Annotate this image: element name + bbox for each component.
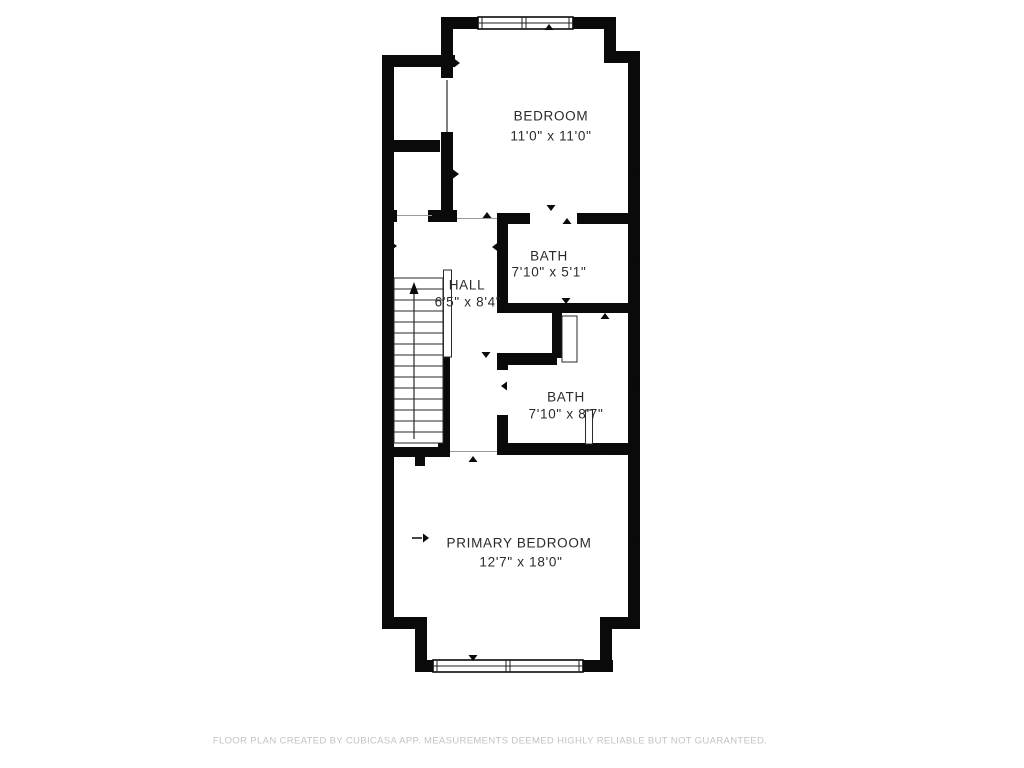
room-dims-bath-upper: 7'10" x 5'1" (512, 265, 587, 280)
room-dims-bath-lower: 7'10" x 8'7" (529, 407, 604, 422)
dimension-arrow-icon (563, 218, 572, 224)
room-dims-primary-bedroom: 12'7" x 18'0" (479, 555, 562, 570)
dimension-arrow-icon (501, 382, 507, 391)
floor-plan-drawing (0, 0, 1024, 768)
dimension-arrow-icon (454, 59, 460, 68)
wall-segment (600, 617, 640, 629)
top-window (478, 17, 573, 29)
room-label-bath-lower: BATH (547, 390, 585, 405)
disclaimer-text: FLOOR PLAN CREATED BY CUBICASA APP. MEAS… (213, 736, 767, 747)
bottom-window (433, 660, 583, 672)
wall-segment (497, 213, 530, 224)
wall-segment (441, 17, 453, 78)
dimension-arrow-icon (547, 205, 556, 211)
wall-segment (382, 210, 397, 222)
wall-segment (415, 457, 425, 466)
dimension-arrow-icon (423, 534, 429, 543)
wall-segment (428, 210, 457, 222)
wall-segment (383, 140, 440, 152)
dimension-arrow-icon (469, 456, 478, 462)
room-label-hall: HALL (449, 278, 486, 293)
room-dims-hall: 6'5" x 8'4" (435, 295, 502, 310)
dimension-arrow-icon (453, 170, 459, 179)
wall-segment (497, 443, 640, 455)
room-label-bedroom: BEDROOM (514, 109, 589, 124)
dimension-arrow-icon (492, 243, 498, 252)
wall-segment (497, 303, 640, 313)
dimension-arrow-icon (601, 313, 610, 319)
room-label-primary-bedroom: PRIMARY BEDROOM (446, 536, 591, 551)
dimension-arrow-icon (482, 352, 491, 358)
wall-segment (441, 132, 453, 220)
wall-segment (552, 313, 562, 358)
wall-segment (382, 447, 450, 457)
dimension-arrow-icon (483, 212, 492, 218)
closet-enclosure (562, 316, 577, 362)
wall-segment (497, 353, 508, 370)
room-dims-bedroom: 11'0" x 11'0" (510, 129, 591, 144)
wall-segment (577, 213, 640, 224)
room-label-bath-upper: BATH (530, 249, 568, 264)
floor-plan-page: BEDROOM 11'0" x 11'0" BATH 7'10" x 5'1" … (0, 0, 1024, 768)
